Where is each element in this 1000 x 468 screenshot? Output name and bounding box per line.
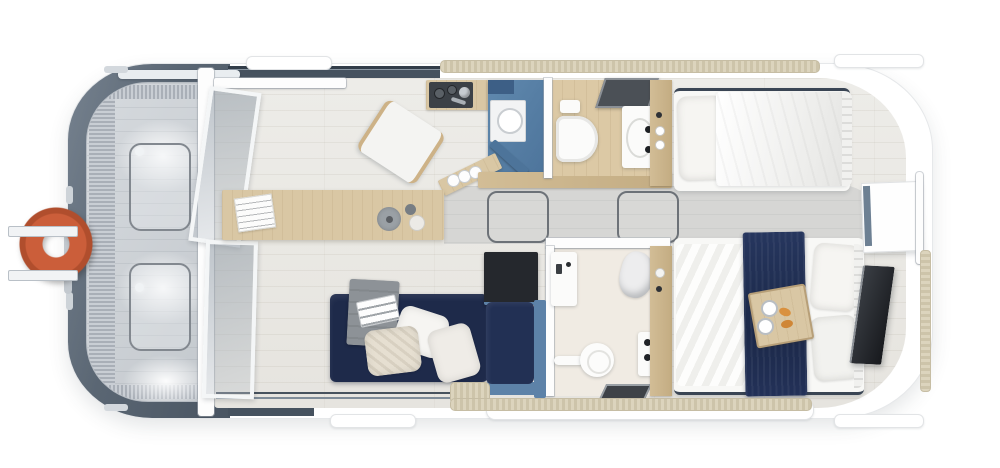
vanity-aft-faucet xyxy=(566,262,571,267)
cup xyxy=(405,204,416,215)
mooring-pad xyxy=(330,414,416,428)
mooring-pad xyxy=(834,54,924,68)
newspaper xyxy=(234,194,276,233)
bottom-window-lines xyxy=(216,390,486,402)
walkway-pad-bottom xyxy=(450,398,812,411)
bathroom-fore-wall xyxy=(544,78,552,178)
door-header-rail xyxy=(214,78,346,88)
shelf-item xyxy=(655,126,665,136)
houseboat-floorplan xyxy=(0,0,1000,468)
deck-hatch xyxy=(129,143,191,231)
burner xyxy=(447,85,457,95)
vanity-aft xyxy=(551,252,577,306)
life-ring-strap xyxy=(8,226,78,237)
duvet-fore-ruffle xyxy=(842,92,852,186)
bowl xyxy=(409,215,425,231)
shelf-item xyxy=(655,140,665,150)
glass-panel xyxy=(202,240,258,399)
cabinet-top-band xyxy=(488,80,514,94)
plate-center xyxy=(386,216,393,223)
wardrobe-item xyxy=(655,268,665,278)
breakfast-tray xyxy=(748,283,815,348)
mooring-pad xyxy=(246,56,332,70)
kettle xyxy=(459,87,470,98)
life-ring-strap xyxy=(8,270,78,281)
sofa-cabinet xyxy=(484,252,538,305)
coffee-cup xyxy=(757,318,774,335)
shelf-item xyxy=(656,112,662,118)
toilet-fore xyxy=(556,116,598,162)
vanity-aft-items xyxy=(556,264,562,274)
toilet-cistern xyxy=(560,100,580,113)
rim-cleat xyxy=(66,292,73,310)
rim-cleat xyxy=(104,66,128,73)
duvet-fore xyxy=(716,92,848,186)
wardrobe-item xyxy=(656,286,662,292)
burner xyxy=(434,88,445,99)
coffee-cup xyxy=(761,300,778,317)
deck-light-glow xyxy=(123,355,209,402)
sofa-pillow-knit xyxy=(363,325,422,377)
rim-cleat xyxy=(66,186,73,204)
corridor-floor-hatch xyxy=(617,191,679,243)
sofa-corner-seat xyxy=(486,302,534,384)
galley-sink xyxy=(497,108,523,134)
mooring-pad xyxy=(834,414,924,428)
toilet-aft-bowl xyxy=(587,350,611,374)
corridor-floor-hatch xyxy=(487,191,549,243)
stern-fender-strip xyxy=(920,250,931,392)
rim-cleat xyxy=(104,404,128,411)
walkway-pad-top xyxy=(440,60,820,73)
deck-ridged-trim-top xyxy=(107,85,211,99)
deck-hatch xyxy=(129,263,191,351)
sheet-crumple xyxy=(676,244,746,386)
